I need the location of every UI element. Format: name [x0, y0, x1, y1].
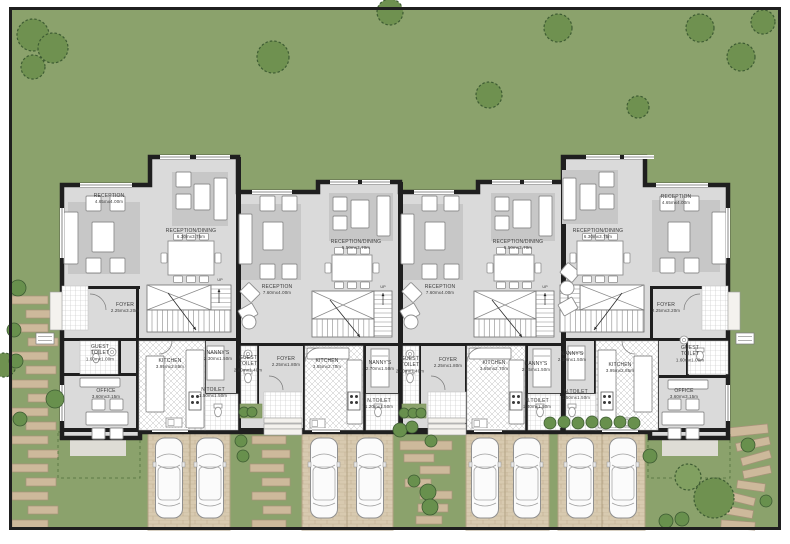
furniture	[662, 412, 704, 425]
chair	[200, 276, 209, 283]
furniture	[599, 194, 614, 209]
dining-table	[168, 241, 214, 275]
interior-wall	[650, 289, 653, 341]
room-name: NANNY'S	[369, 360, 392, 366]
room-dimensions: 2.70mx1.50m	[366, 366, 394, 371]
shrub-icon	[420, 484, 436, 500]
room-dimensions: 3.60mx3.15m	[670, 394, 698, 399]
interior-wall	[241, 343, 401, 346]
round-table	[560, 281, 574, 295]
furniture	[513, 200, 531, 228]
room-name: TOILET	[401, 362, 419, 368]
room-label: RECEPTION7.60mx4.00m	[425, 284, 456, 295]
furniture	[668, 428, 681, 439]
furniture	[194, 184, 210, 210]
furniture	[351, 200, 369, 228]
interior-wall	[652, 375, 730, 378]
room-dimensions: 6.30mx3.75m	[584, 234, 612, 239]
furniture	[563, 178, 576, 220]
room-name: RECEPTION/DINING	[493, 239, 543, 245]
furniture	[110, 399, 123, 410]
car-icon	[607, 438, 639, 518]
chair	[497, 282, 506, 289]
room-dimensions: 3.95mx2.85m	[606, 368, 634, 373]
room-dimensions: 2.25mx1.80m	[434, 363, 462, 368]
tree-icon	[751, 10, 775, 34]
furniture	[86, 412, 128, 425]
shrub-icon	[422, 499, 438, 515]
interior-wall	[62, 338, 240, 341]
room-dimensions: 3.60mx3.15m	[92, 394, 120, 399]
furniture	[239, 214, 252, 264]
room-dimensions: 1.20mx1.50m	[365, 404, 393, 409]
furniture	[712, 212, 726, 264]
room-dimensions: 2.45mx1.50m	[522, 367, 550, 372]
stove	[510, 392, 522, 410]
room-name: N.TOILET	[525, 398, 549, 404]
furniture	[333, 197, 347, 211]
room-name: FOYER	[657, 302, 675, 308]
entry-step	[50, 292, 62, 330]
chair	[523, 282, 532, 289]
up-label: UP	[380, 285, 386, 289]
round-table	[404, 315, 418, 329]
stepping-stone	[416, 516, 442, 524]
furniture	[580, 184, 596, 210]
terrace	[70, 438, 126, 456]
room-name: RECEPTION/DINING	[166, 228, 216, 234]
chair	[325, 263, 331, 273]
room-name: FOYER	[116, 302, 134, 308]
chair	[161, 253, 167, 263]
tree-icon	[38, 33, 68, 63]
tree-icon	[544, 14, 572, 42]
furniture	[260, 196, 275, 211]
shrub-icon	[46, 390, 64, 408]
stepping-stone	[26, 478, 56, 486]
car-icon	[564, 438, 596, 518]
room-name: OFFICE	[96, 388, 116, 394]
furniture	[176, 194, 191, 209]
furniture	[425, 222, 445, 250]
room-label: NANNY'S2.45mx1.50m	[522, 361, 550, 372]
room-label: N.TOILET1.50mx1.50m	[199, 387, 227, 398]
room-label: NANNY'S2.30mx1.50m	[204, 350, 232, 361]
room-dimensions: 1.50mx1.50m	[199, 393, 227, 398]
room-dimensions: 4.65mx4.00m	[95, 199, 123, 204]
party-wall	[236, 157, 241, 432]
room-dimensions: 2.40mx1.40m	[396, 368, 424, 373]
room-dimensions: 5.50mx3.70m	[504, 245, 532, 250]
chair	[583, 276, 592, 283]
shrub-icon	[416, 408, 426, 418]
floor-plan-page: UPUPUPUPRECEPTION4.65mx4.00mRECEPTION/DI…	[0, 0, 790, 544]
room-name: RECEPTION	[262, 284, 293, 290]
room-name: GUEST	[239, 355, 257, 361]
stepping-stone	[404, 454, 434, 462]
entry-step	[264, 424, 302, 429]
room-dimensions: 3.65mx2.70m	[313, 364, 341, 369]
chair	[609, 276, 618, 283]
shrub-icon	[600, 417, 612, 429]
chair	[487, 263, 493, 273]
tree-icon	[377, 0, 403, 25]
room-name: GUEST	[91, 344, 109, 350]
shrub-icon	[586, 416, 598, 428]
stepping-stone	[12, 520, 48, 528]
furniture	[469, 348, 511, 359]
stepping-stone	[26, 366, 56, 374]
chair	[596, 276, 605, 283]
furniture	[110, 428, 123, 439]
room-name: KITCHEN	[609, 362, 632, 368]
stepping-stone	[12, 464, 48, 472]
tile-floor	[428, 392, 466, 418]
room-label: N.TOILET1.40mx1.50m	[523, 398, 551, 409]
room-dimensions: 2.00mx1.40m	[234, 367, 262, 372]
room-dimensions: 1.60mx1.00m	[676, 357, 704, 362]
room-dimensions: 6.30mx3.75m	[177, 234, 205, 239]
chair	[361, 282, 370, 289]
room-name: FOYER	[439, 357, 457, 363]
furniture	[282, 264, 297, 279]
furniture	[92, 222, 114, 252]
room-dimensions: 3.65mx2.70m	[480, 366, 508, 371]
car-icon	[511, 438, 543, 518]
shrub-icon	[558, 416, 570, 428]
furniture	[686, 428, 699, 439]
room-label: KITCHEN3.95mx2.85m	[606, 362, 634, 373]
entry-step	[428, 418, 466, 423]
room-dimensions: 7.60mx4.00m	[263, 290, 291, 295]
room-name: N.TOILET	[564, 389, 588, 395]
round-table	[242, 315, 256, 329]
furniture	[422, 264, 437, 279]
furniture	[92, 399, 105, 410]
tree-icon	[694, 478, 734, 518]
floor-plan-canvas: UPUPUPUPRECEPTION4.65mx4.00mRECEPTION/DI…	[0, 0, 790, 544]
room-name: FOYER	[277, 356, 295, 362]
stepping-stone	[262, 478, 290, 486]
room-label: KITCHEN3.95mx2.85m	[156, 358, 184, 369]
room-label: RECEPTION4.65mx4.00m	[661, 194, 692, 205]
room-dimensions: 1.50mx1.50m	[562, 395, 590, 400]
room-name: RECEPTION	[425, 284, 456, 290]
dining-table	[577, 241, 623, 275]
car-icon	[153, 438, 185, 518]
dining-table	[494, 255, 534, 281]
stepping-stone	[12, 436, 48, 444]
room-dimensions: 2.25mx3.20m	[111, 308, 139, 313]
room-name: NANNY'S	[525, 361, 548, 367]
shrub-icon	[741, 438, 755, 452]
shrub-icon	[643, 449, 657, 463]
stove	[348, 392, 360, 410]
tile-floor	[702, 286, 728, 330]
shrub-icon	[237, 450, 249, 462]
basin	[680, 336, 688, 344]
interior-wall	[525, 346, 528, 432]
room-name: OFFICE	[674, 388, 694, 394]
room-name: KITCHEN	[316, 358, 339, 364]
furniture	[668, 399, 681, 410]
interior-wall	[118, 341, 121, 375]
room-dimensions: 2.30mx1.50m	[558, 357, 586, 362]
shrub-icon	[614, 416, 626, 428]
equipment-pad	[736, 333, 754, 344]
car-icon	[354, 438, 386, 518]
tree-icon	[627, 96, 649, 118]
interior-wall	[136, 289, 139, 341]
shrub-icon	[628, 417, 640, 429]
room-dimensions: 1.40mx1.50m	[523, 404, 551, 409]
furniture	[282, 196, 297, 211]
entry-step	[728, 292, 740, 330]
dining-table	[332, 255, 372, 281]
stepping-stone	[252, 436, 286, 444]
car-icon	[469, 438, 501, 518]
chair	[348, 282, 357, 289]
chair	[624, 253, 630, 263]
shrub-icon	[425, 435, 437, 447]
room-label: RECEPTION7.60mx4.00m	[262, 284, 293, 295]
furniture	[92, 428, 105, 439]
room-name: N.TOILET	[367, 398, 391, 404]
furniture	[64, 212, 78, 264]
shrub-icon	[659, 514, 673, 528]
tree-icon	[675, 464, 701, 490]
shrub-icon	[13, 412, 27, 426]
stepping-stone	[262, 450, 290, 458]
room-name: NANNY'S	[561, 351, 584, 357]
room-name: RECEPTION	[94, 193, 125, 199]
stepping-stone	[263, 506, 291, 514]
room-label: N.TOILET1.20mx1.50m	[365, 398, 393, 409]
room-label: NANNY'S2.30mx1.50m	[558, 351, 586, 362]
up-label: UP	[217, 278, 223, 282]
entry-step	[264, 429, 302, 435]
stepping-stone	[12, 296, 48, 304]
furniture	[260, 264, 275, 279]
furniture	[599, 172, 614, 187]
room-dimensions: 3.95mx2.85m	[156, 364, 184, 369]
tile-floor	[62, 286, 88, 330]
room-name: KITCHEN	[159, 358, 182, 364]
shrub-icon	[247, 407, 257, 417]
room-label: KITCHEN3.65mx2.70m	[313, 358, 341, 369]
interior-wall	[136, 341, 139, 432]
shrub-icon	[572, 417, 584, 429]
room-dimensions: 2.30mx1.50m	[204, 356, 232, 361]
stove	[601, 392, 613, 410]
furniture	[110, 258, 125, 273]
room-dimensions: 2.25mx1.80m	[272, 362, 300, 367]
chair	[215, 253, 221, 263]
shrub-icon	[408, 475, 420, 487]
interior-wall	[403, 343, 563, 346]
up-label: UP	[542, 285, 548, 289]
stepping-stone	[28, 450, 58, 458]
chair	[570, 253, 576, 263]
furniture	[401, 214, 414, 264]
furniture	[660, 258, 675, 273]
interior-wall	[363, 346, 366, 432]
shrub-icon	[399, 408, 409, 418]
furniture	[495, 197, 509, 211]
furniture	[176, 172, 191, 187]
room-dimensions: 1.60mx1.00m	[86, 356, 114, 361]
tree-icon	[21, 55, 45, 79]
room-name: RECEPTION/DINING	[573, 228, 623, 234]
room-dimensions: 2.25mx3.20m	[652, 308, 680, 313]
furniture	[86, 258, 101, 273]
dining-set	[161, 234, 221, 283]
stepping-stone	[12, 380, 48, 388]
room-label: RECEPTION4.65mx4.00m	[94, 193, 125, 204]
room-name: GUEST	[681, 345, 699, 351]
furniture	[686, 399, 699, 410]
chair	[174, 276, 183, 283]
furniture	[422, 196, 437, 211]
furniture	[444, 264, 459, 279]
shrub-icon	[393, 423, 407, 437]
room-name: NANNY'S	[207, 350, 230, 356]
room-name: TOILET	[239, 361, 257, 367]
furniture	[539, 196, 552, 236]
entry-step	[264, 418, 302, 423]
chair	[187, 276, 196, 283]
room-dimensions: 7.60mx4.00m	[426, 290, 454, 295]
stepping-stone	[28, 506, 58, 514]
furniture	[634, 356, 652, 412]
room-name: TOILET	[681, 351, 699, 357]
tile-floor	[264, 392, 302, 418]
chair	[535, 263, 541, 273]
shrub-icon	[235, 435, 247, 447]
shrub-icon	[675, 512, 689, 526]
room-label: NANNY'S2.70mx1.50m	[366, 360, 394, 371]
tree-icon	[476, 82, 502, 108]
tree-icon	[686, 14, 714, 42]
entry-step	[428, 429, 466, 435]
stepping-stone	[420, 466, 450, 474]
stepping-stone	[12, 492, 48, 500]
furniture	[495, 216, 509, 230]
room-dimensions: 4.65mx4.00m	[662, 200, 690, 205]
interior-wall	[566, 338, 728, 341]
shrub-icon	[10, 280, 26, 296]
toilet-fixture	[214, 404, 222, 417]
entry-step	[428, 424, 466, 429]
room-label: KITCHEN3.65mx2.70m	[480, 360, 508, 371]
stepping-stone	[252, 520, 286, 528]
chair	[373, 263, 379, 273]
shrub-icon	[406, 421, 418, 433]
room-name: KITCHEN	[483, 360, 506, 366]
furniture	[377, 196, 390, 236]
stepping-stone	[250, 464, 284, 472]
furniture	[333, 216, 347, 230]
room-name: TOILET	[91, 350, 109, 356]
room-name: GUEST	[401, 356, 419, 362]
furniture	[263, 222, 283, 250]
room-name: RECEPTION/DINING	[331, 239, 381, 245]
stepping-stone	[252, 492, 286, 500]
shrub-icon	[544, 417, 556, 429]
furniture	[668, 222, 690, 252]
stepping-stone	[26, 422, 56, 430]
car-icon	[194, 438, 226, 518]
furniture	[684, 258, 699, 273]
basin	[108, 348, 116, 356]
shrub-icon	[760, 495, 772, 507]
tree-icon	[727, 43, 755, 71]
stair-treads	[560, 310, 644, 332]
chair	[335, 282, 344, 289]
room-name: N.TOILET	[201, 387, 225, 393]
room-dimensions: 5.50mx3.70m	[342, 245, 370, 250]
chair	[510, 282, 519, 289]
dining-set	[570, 234, 630, 283]
room-label: N.TOILET1.50mx1.50m	[562, 389, 590, 400]
toilet-fixture	[568, 404, 576, 417]
equipment-pad	[36, 333, 54, 344]
terrace	[662, 438, 718, 456]
room-name: RECEPTION	[661, 194, 692, 200]
tree-icon	[257, 41, 289, 73]
furniture	[80, 378, 120, 387]
furniture	[214, 178, 227, 220]
furniture	[444, 196, 459, 211]
car-icon	[308, 438, 340, 518]
